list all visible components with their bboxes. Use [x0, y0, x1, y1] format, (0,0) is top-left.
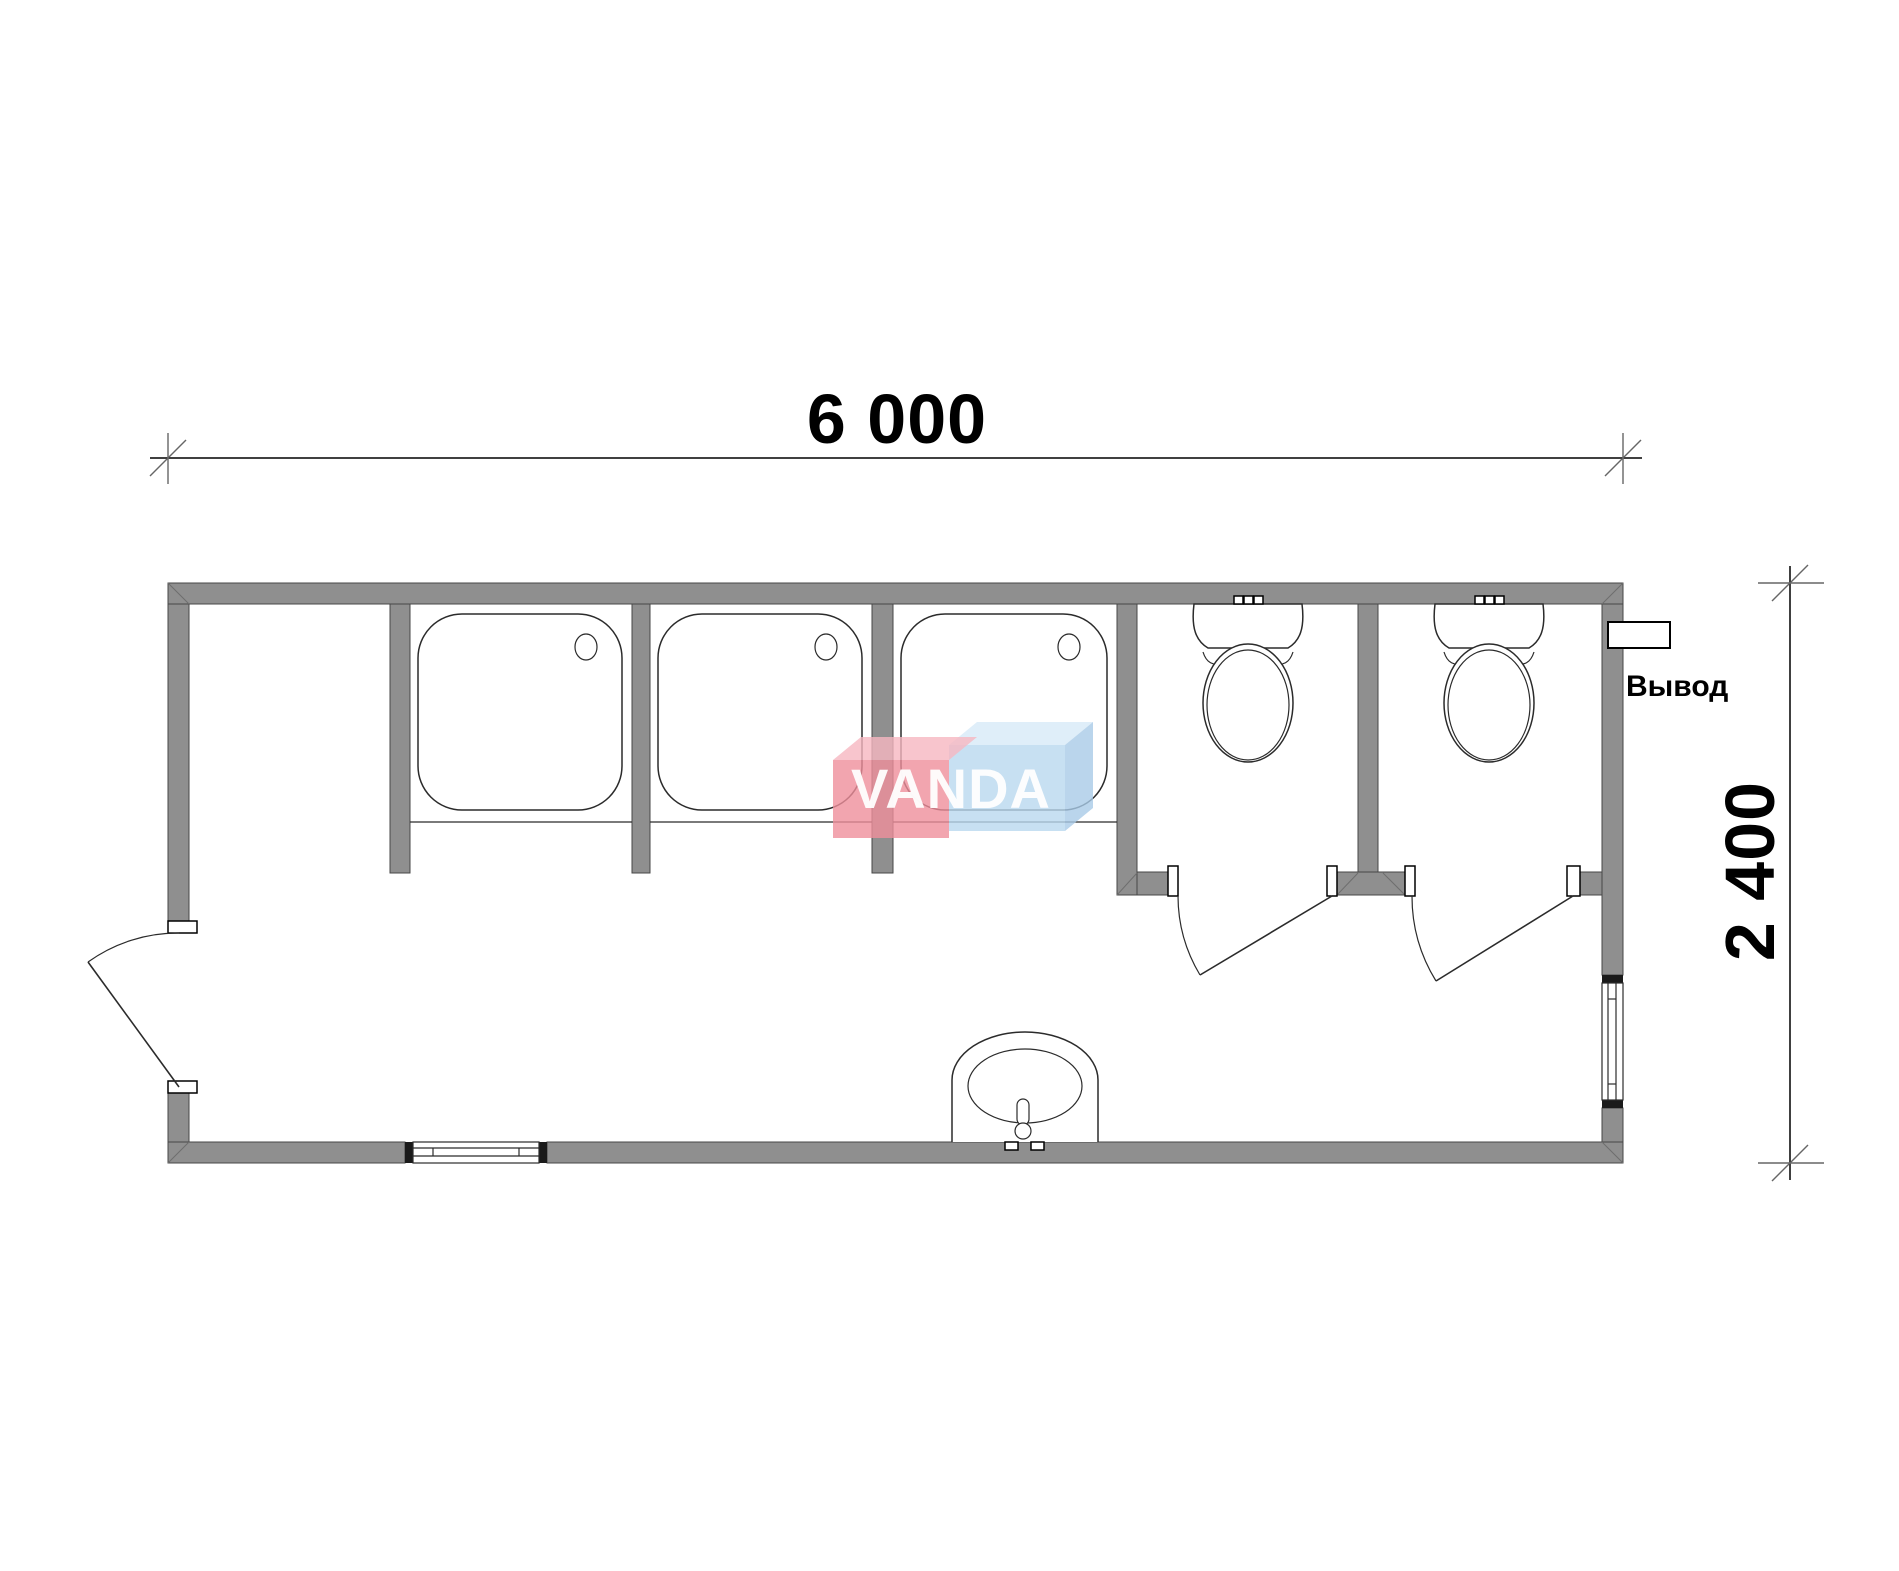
door-swing-arc [88, 933, 179, 962]
flush-button-icon [1475, 596, 1484, 604]
door-swing-arc [1412, 896, 1436, 981]
wc2-door-stub-left [1337, 872, 1405, 895]
flush-button-icon [1495, 596, 1504, 604]
drain-icon [575, 634, 597, 660]
door-swing-arc [1178, 896, 1200, 975]
entry-door [88, 921, 197, 1093]
door-jamb [168, 1081, 197, 1093]
outlet-label: Вывод [1626, 670, 1728, 704]
wall-top [168, 583, 1623, 604]
door-jamb [168, 921, 197, 933]
window-frame-icon [413, 1142, 539, 1163]
door-leaf [1436, 896, 1573, 981]
wc1-door-stub [1137, 872, 1168, 895]
vanda-logo: VANDA [820, 715, 1105, 845]
wall-bottom-right-segment [547, 1142, 1623, 1163]
floor-plan-canvas: VANDA 6 000 2 400 Вывод [0, 0, 1899, 1571]
partition-shower1-shower2 [632, 604, 650, 873]
faucet-base-icon [1015, 1123, 1031, 1139]
supply-connection-icon [1031, 1142, 1044, 1150]
drain-icon [1058, 634, 1080, 660]
supply-connection-icon [1005, 1142, 1018, 1150]
flush-button-icon [1485, 596, 1494, 604]
window-jamb [539, 1142, 547, 1163]
door-jamb [1168, 866, 1178, 896]
door-jamb [1327, 866, 1337, 896]
toilet-seat-icon [1448, 650, 1530, 760]
wall-bottom-left-segment [168, 1142, 405, 1163]
window-right [1602, 975, 1623, 1108]
window-bottom [405, 1142, 547, 1163]
window-frame-icon [1602, 983, 1623, 1100]
dimension-height-label: 2 400 [1667, 761, 1833, 981]
toilet-tank-icon [1434, 604, 1544, 648]
door-jamb [1405, 866, 1415, 896]
shower-stall-1 [410, 614, 632, 822]
dimension-width-label: 6 000 [737, 383, 1057, 455]
wall-right-upper-segment [1602, 604, 1623, 975]
partition-shower3-wc1 [1117, 604, 1137, 895]
vanda-logo-text: VANDA [820, 761, 1082, 817]
toilet-seat-icon [1207, 650, 1289, 760]
drain-icon [815, 634, 837, 660]
toilet-tank-icon [1193, 604, 1303, 648]
toilet-2 [1434, 596, 1544, 762]
flush-button-icon [1244, 596, 1253, 604]
wall-right-lower-segment [1602, 1108, 1623, 1142]
window-jamb [405, 1142, 413, 1163]
wc-door-1 [1168, 866, 1337, 975]
faucet-icon [1017, 1099, 1029, 1125]
wall-left-upper-segment [168, 604, 189, 921]
partition-wc1-wc2 [1358, 604, 1378, 895]
wc-door-2 [1405, 866, 1580, 981]
door-jamb [1567, 866, 1580, 896]
pipe-outlet-icon [1608, 622, 1670, 648]
flush-button-icon [1254, 596, 1263, 604]
flush-button-icon [1234, 596, 1243, 604]
toilet-1 [1193, 596, 1303, 762]
wc2-door-stub-right [1580, 872, 1602, 895]
washbasin [952, 1032, 1098, 1150]
partition-entry-shower1 [390, 604, 410, 873]
window-jamb [1602, 1100, 1623, 1108]
wall-left-lower-segment [168, 1093, 189, 1142]
door-leaf [88, 962, 179, 1087]
window-jamb [1602, 975, 1623, 983]
door-leaf [1200, 896, 1332, 975]
